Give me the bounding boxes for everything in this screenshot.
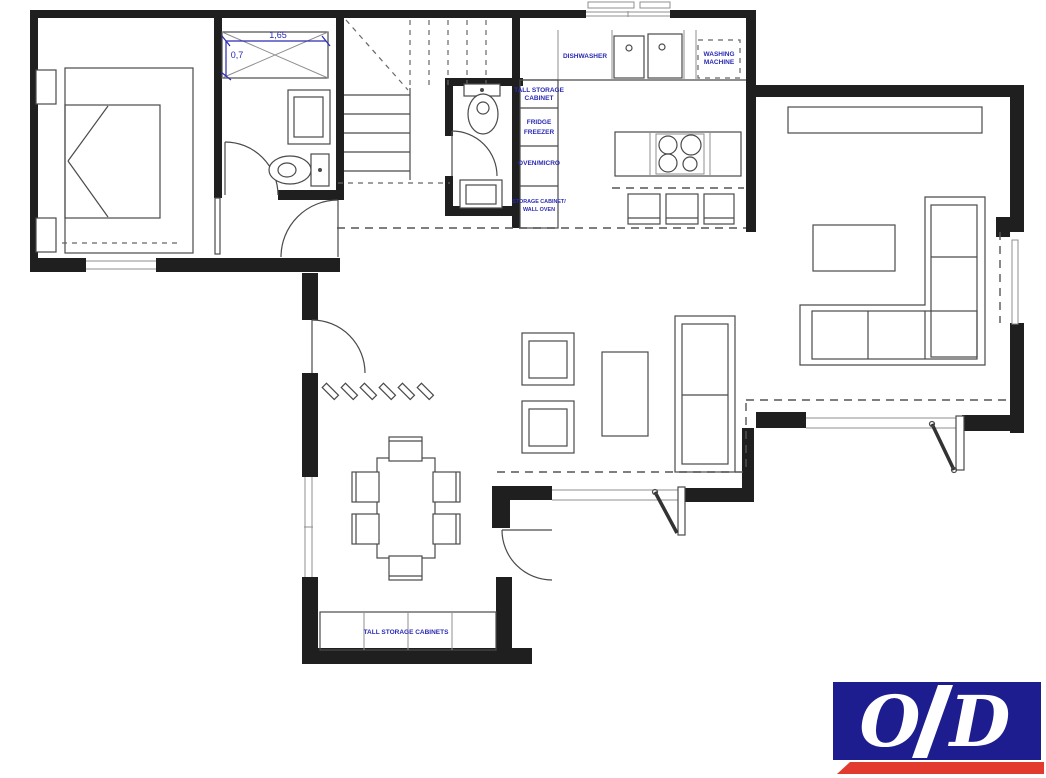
shower-depth-dimension: 0,7 (231, 50, 244, 60)
dining-table (377, 458, 435, 558)
nightstand (36, 70, 56, 104)
corner-sofa (800, 197, 985, 365)
logo-letter-d: D (948, 680, 1011, 763)
toilet (269, 154, 329, 186)
storage-cabinet-label: WALL OVEN (523, 207, 555, 213)
logo-letter-o: O (860, 680, 921, 763)
armchair (522, 401, 574, 453)
upper-floor-outline (337, 228, 1008, 472)
oven-micro-label: OVEN/MICRO (518, 160, 560, 167)
kitchen-sink (614, 34, 682, 78)
coffee-table (813, 225, 895, 271)
stair-break-line (346, 20, 408, 90)
tall-unit-column (520, 80, 558, 228)
side-table (602, 352, 648, 436)
staircase (338, 20, 486, 183)
two-seat-sofa (675, 316, 735, 472)
bar-stools (628, 194, 734, 224)
logo-underline (837, 762, 1044, 774)
dining-chairs (352, 437, 460, 580)
dining-area (320, 383, 496, 650)
hatch-marks (322, 383, 433, 399)
wc (460, 84, 502, 208)
washing-machine-label: MACHINE (704, 59, 735, 66)
tall-storage-cabinet-label: TALL STORAGE (514, 87, 565, 94)
fridge-freezer-label: FREEZER (524, 129, 555, 136)
hob (656, 134, 704, 174)
dining-labels: TALL STORAGE CABINETS (364, 629, 450, 636)
shower-width-dimension: 1,65 (269, 30, 287, 40)
washing-machine-label: WASHING (703, 51, 734, 58)
sideboard (788, 107, 982, 133)
storage-cabinet-label: STORAGE CABINET/ (512, 199, 566, 205)
nightstand (36, 218, 56, 252)
armchair (522, 333, 574, 385)
bed-duvet (65, 105, 160, 218)
washbasin (288, 90, 330, 144)
floor-plan-drawing: 1,65 0,7 (0, 0, 1046, 778)
fridge-freezer-label: FRIDGE (527, 119, 552, 126)
dimension-labels: 1,65 0,7 (231, 30, 287, 60)
patio-doors (653, 416, 965, 535)
wc-basin (460, 180, 502, 208)
kitchen-island (612, 132, 744, 188)
company-logo: O D (833, 680, 1044, 774)
living-room (788, 107, 985, 365)
lounge-area (522, 316, 735, 472)
bedroom (36, 68, 193, 253)
tall-storage-cabinet-label: CABINET (525, 95, 554, 102)
bed-frame (65, 68, 193, 253)
dishwasher-label: DISHWASHER (563, 53, 607, 60)
floor-plan-page: 1,65 0,7 (0, 0, 1046, 778)
tall-storage-cabinets-label: TALL STORAGE CABINETS (364, 629, 450, 636)
wc-toilet (464, 84, 500, 134)
